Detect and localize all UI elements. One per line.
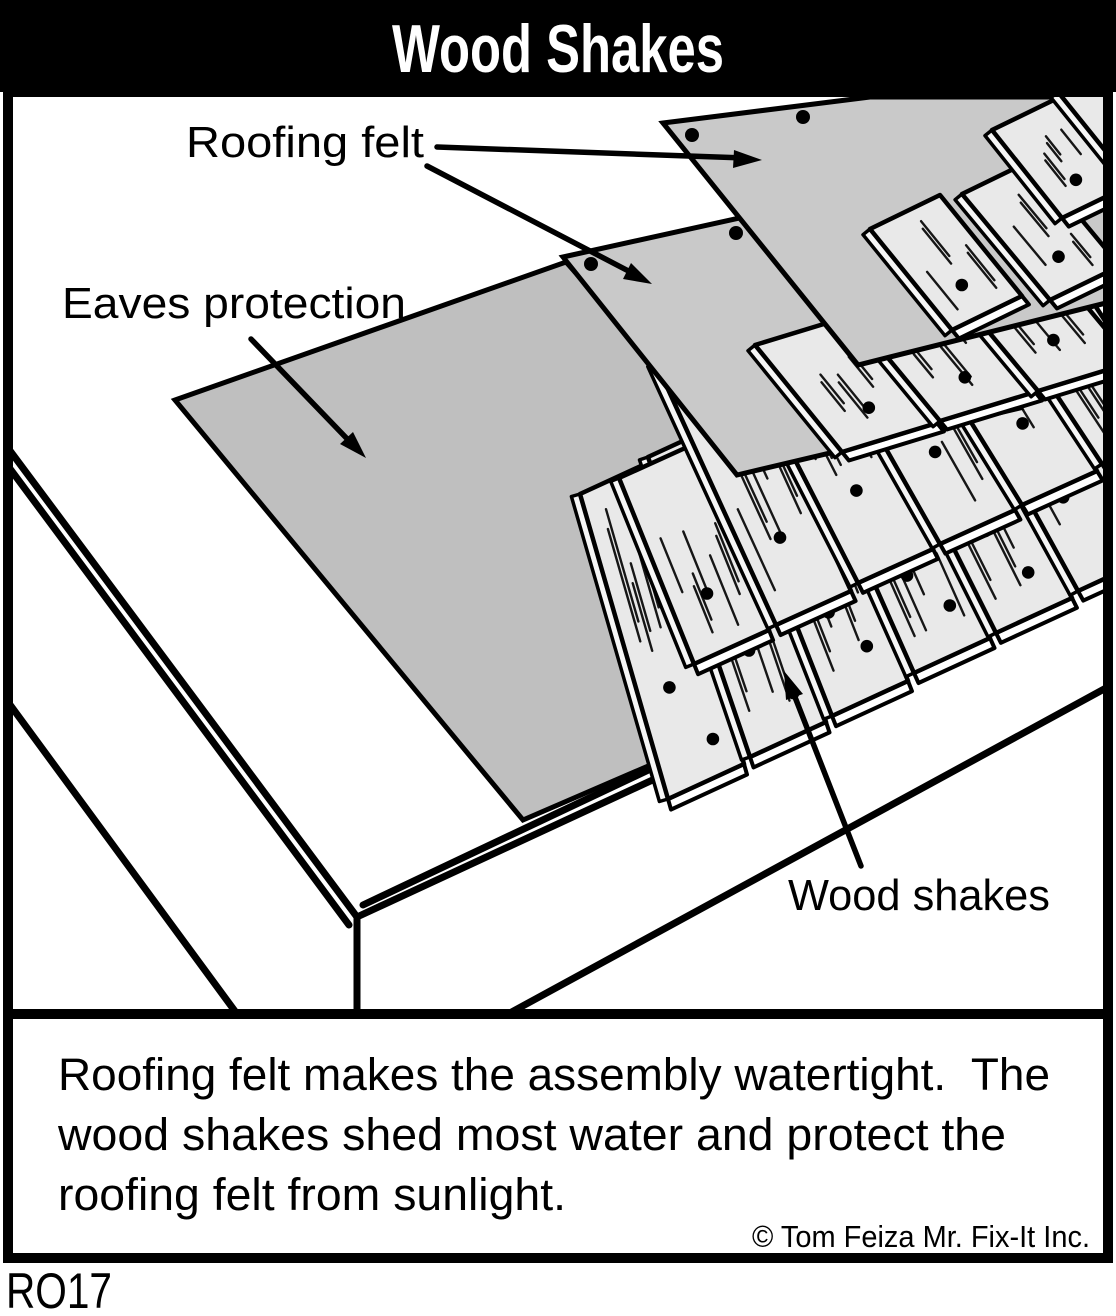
shake-nail [944,599,957,612]
shake-nail [861,640,874,653]
caption-line-1: Roofing felt makes the assembly watertig… [58,1049,1050,1100]
shake-nail [1070,174,1083,187]
shake-nail [1022,566,1035,579]
felt-nail [685,128,699,142]
shake-nail [863,401,876,414]
shake-nail [956,279,969,292]
shake-nail [707,733,720,746]
shake-nail [929,446,942,459]
shake-nail [850,484,863,497]
caption-credit: © Tom Feiza Mr. Fix-It Inc. [752,1219,1090,1254]
shake-nail [1052,250,1065,263]
figure: Wood Shakes [0,0,1116,1316]
figure-code: RO17 [6,1263,112,1316]
shake-nail [959,371,972,384]
label-eaves-protection: Eaves protection [62,279,406,328]
shake-nail [701,587,714,600]
caption-line-3: roofing felt from sunlight. [58,1169,566,1220]
caption-line-2: wood shakes shed most water and protect … [57,1109,1006,1160]
shake-nail [1047,334,1060,347]
label-wood-shakes: Wood shakes [788,871,1050,920]
shake-nail [1016,417,1029,430]
shake-nail [663,681,676,694]
label-roofing-felt: Roofing felt [186,118,424,167]
felt-nail [729,226,743,240]
felt-nail [584,257,598,271]
page-title: Wood Shakes [392,11,724,87]
shake-nail [774,531,787,544]
felt-nail [796,110,810,124]
